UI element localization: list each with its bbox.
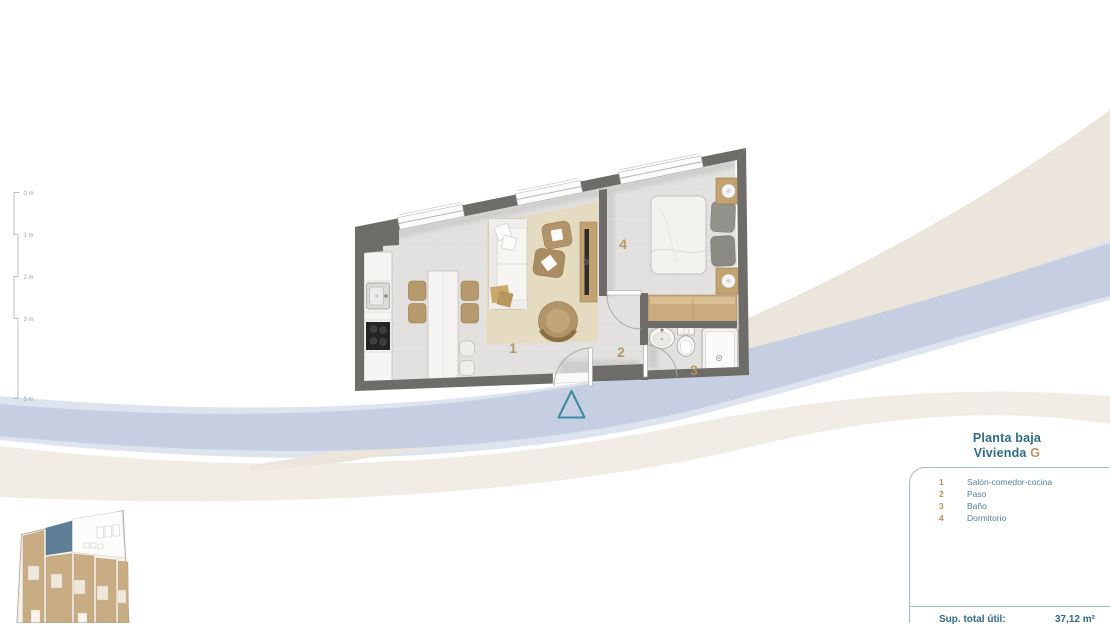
bathroom-left-wall bbox=[640, 323, 648, 345]
brochure-page: { "panel": { "title_line1": "Planta baja… bbox=[0, 0, 1110, 623]
armchair bbox=[539, 302, 578, 341]
kitchen-area bbox=[364, 252, 392, 382]
bottom-wall-step bbox=[592, 364, 645, 382]
shower-tray bbox=[702, 328, 738, 372]
stool bbox=[460, 361, 475, 376]
legend-items: 1 Salón-comedor-cocina 2 Paso 3 Baño 4 D… bbox=[910, 477, 1109, 525]
summary-value: 37,12 m² bbox=[1055, 614, 1095, 625]
scale-label-2m: 2 m bbox=[24, 275, 34, 281]
nightstand bbox=[716, 268, 741, 294]
kitchen-counter bbox=[364, 252, 392, 382]
sofa bbox=[489, 219, 527, 309]
legend-row: 2 Paso bbox=[910, 489, 1109, 501]
ottoman-table bbox=[532, 248, 565, 279]
scale-label-3m: 3 m bbox=[24, 317, 34, 323]
stool bbox=[460, 341, 475, 356]
summary-row: Sup. total útil: 37,12 m² bbox=[939, 614, 1095, 625]
entrance-triangle-icon bbox=[559, 391, 585, 418]
legend-number: 1 bbox=[939, 477, 951, 487]
legend-row: 1 Salón-comedor-cocina bbox=[910, 477, 1109, 489]
plan-title-unit: Vivienda G bbox=[906, 446, 1108, 461]
room-number-3: 3 bbox=[690, 362, 698, 378]
left-wall bbox=[355, 227, 364, 391]
tv-console bbox=[580, 222, 597, 302]
legend-box: 1 Salón-comedor-cocina 2 Paso 3 Baño 4 D… bbox=[909, 467, 1109, 623]
room-number-4: 4 bbox=[619, 236, 627, 252]
summary-label: Sup. total útil: bbox=[939, 614, 1006, 625]
dining-chair bbox=[461, 281, 479, 301]
bathroom-top-wall bbox=[648, 321, 737, 328]
scale-label-5m: 5 m bbox=[24, 397, 34, 403]
legend-label: Salón-comedor-cocina bbox=[967, 477, 1052, 487]
scale-label-0m: 0 m bbox=[24, 191, 34, 197]
ottoman-table bbox=[541, 220, 573, 249]
room-number-1: 1 bbox=[509, 340, 517, 356]
plan-title-floor: Planta baja bbox=[906, 431, 1108, 446]
unit-letter: G bbox=[1030, 446, 1040, 460]
wardrobe bbox=[648, 295, 737, 322]
legend-label: Dormitorio bbox=[967, 513, 1006, 523]
living-bedroom-wall bbox=[599, 189, 607, 296]
legend-label: Paso bbox=[967, 489, 986, 499]
plan-title: Planta baja Vivienda G bbox=[906, 431, 1108, 461]
floor-plan-svg: 1 2 3 4 bbox=[350, 140, 756, 425]
legend-label: Baño bbox=[967, 501, 987, 511]
dining-chair bbox=[409, 304, 427, 324]
scale-bar: 0 m 1 m 2 m 3 m 5 m bbox=[8, 185, 58, 410]
legend-row: 4 Dormitorio bbox=[910, 513, 1109, 525]
toilet bbox=[677, 328, 695, 357]
panel-divider bbox=[909, 606, 1110, 607]
entrance-threshold bbox=[553, 372, 592, 384]
dining-chair bbox=[461, 304, 479, 324]
hall-right-wall bbox=[640, 293, 648, 323]
bedroom-area bbox=[648, 178, 741, 322]
scale-bar-line bbox=[13, 193, 20, 399]
dining-chair bbox=[409, 281, 427, 301]
highlighted-unit-g bbox=[46, 521, 72, 555]
legend-row: 3 Baño bbox=[910, 501, 1109, 513]
circulation-core bbox=[72, 511, 125, 558]
room-number-2: 2 bbox=[617, 344, 625, 360]
legend-number: 3 bbox=[939, 501, 951, 511]
legend-number: 4 bbox=[939, 513, 951, 523]
kitchen-stove bbox=[366, 322, 390, 350]
bathroom-sink bbox=[650, 328, 675, 349]
scale-label-1m: 1 m bbox=[24, 233, 34, 239]
site-key-plan-thumbnail bbox=[14, 496, 150, 623]
right-wall bbox=[737, 148, 749, 375]
kitchen-sink bbox=[367, 283, 390, 309]
legend-number: 2 bbox=[939, 489, 951, 499]
